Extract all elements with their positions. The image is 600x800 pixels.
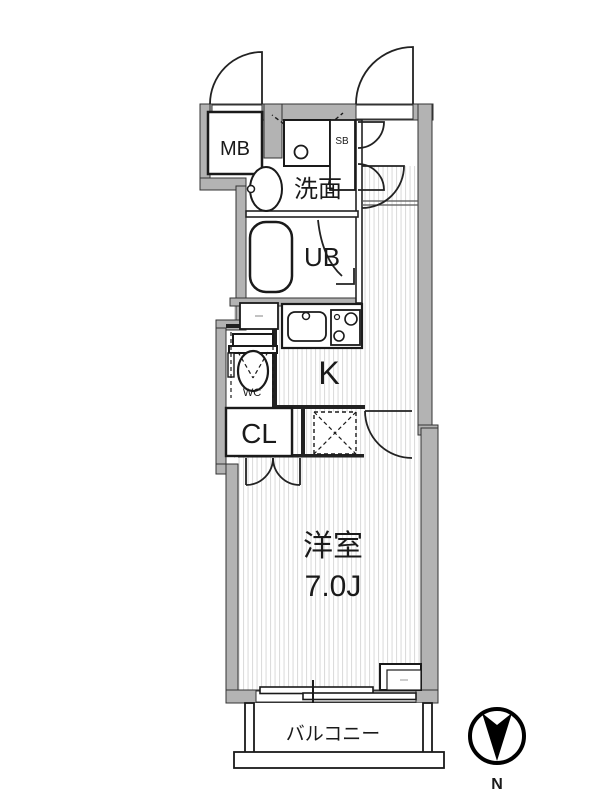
- balcony-rail: [234, 752, 444, 768]
- washroom-label: 洗面: [294, 176, 342, 203]
- floor-plan-page: N MB SB 洗面 UB K WC CL 洋室 7.0J バルコニー: [0, 0, 600, 800]
- wall-right-lower: [421, 428, 438, 703]
- shelf-box: [240, 303, 278, 329]
- wall-niche-left: [301, 408, 305, 456]
- western-room-label: 洋室: [303, 530, 363, 563]
- entrance-opening: [356, 105, 413, 119]
- meter-box-label: MB: [220, 138, 250, 160]
- mb-door-swing-icon: [210, 52, 262, 104]
- compass-north-icon: N: [470, 709, 524, 793]
- kitchen-label: K: [318, 355, 339, 391]
- corner-unit-box: [380, 664, 421, 690]
- balcony-wall-right: [423, 703, 432, 753]
- balcony-wall-left: [245, 703, 254, 753]
- entrance-door-swing-icon: [356, 47, 413, 104]
- wall-left-wc: [216, 328, 226, 474]
- wall-mb-right: [264, 104, 282, 158]
- shoe-box-label: SB: [335, 136, 349, 147]
- entry-floor: [362, 120, 418, 166]
- wall-right-upper: [418, 104, 432, 430]
- kitchen-counter: [282, 304, 362, 348]
- wc-label: WC: [243, 387, 261, 399]
- closet-label: CL: [241, 418, 277, 449]
- wall-washroom-bath: [246, 211, 358, 217]
- hallway-floor: [362, 166, 418, 303]
- bathtub-icon: [250, 222, 292, 292]
- refrigerator-space-icon: [314, 412, 356, 454]
- compass-n-label: N: [491, 776, 503, 793]
- faucet-icon: [303, 313, 310, 320]
- stove-icon: [331, 310, 360, 345]
- floor-plan-drawing: N MB SB 洗面 UB K WC CL 洋室 7.0J バルコニー: [0, 0, 600, 800]
- unit-bath-label: UB: [304, 242, 340, 272]
- wall-left-room: [226, 464, 238, 703]
- balcony-label: バルコニー: [286, 724, 381, 745]
- western-room-size: 7.0J: [305, 570, 362, 603]
